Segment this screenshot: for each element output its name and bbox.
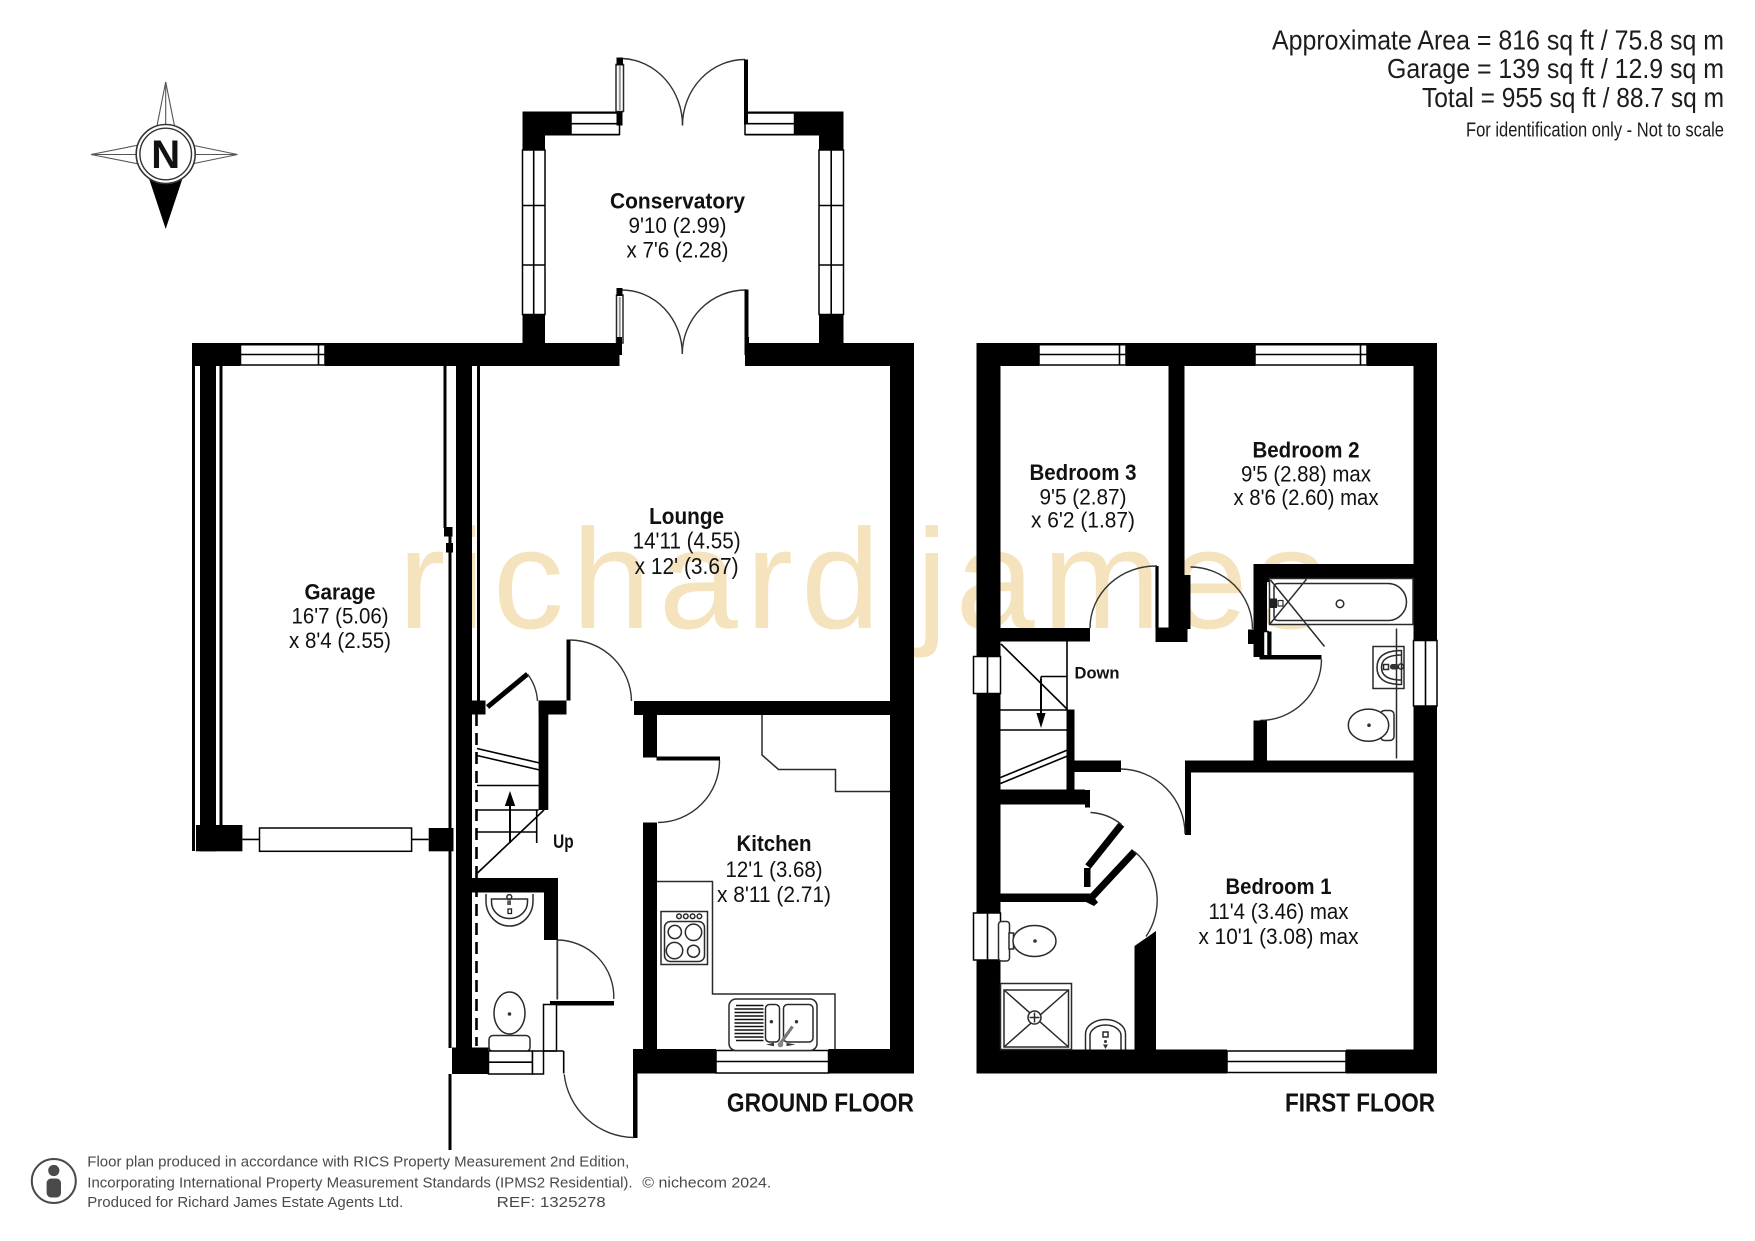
svg-text:Produced for Richard James Est: Produced for Richard James Estate Agents… bbox=[87, 1194, 403, 1211]
svg-text:For identification only - Not: For identification only - Not to scale bbox=[1466, 119, 1724, 141]
svg-text:Kitchen: Kitchen bbox=[737, 831, 812, 856]
svg-text:x 12' (3.67): x 12' (3.67) bbox=[635, 553, 739, 579]
svg-text:Approximate Area = 816 sq ft /: Approximate Area = 816 sq ft / 75.8 sq m bbox=[1272, 25, 1724, 56]
svg-text:Bedroom 3: Bedroom 3 bbox=[1030, 460, 1137, 485]
svg-text:x 8'6 (2.60) max: x 8'6 (2.60) max bbox=[1234, 485, 1379, 510]
svg-text:x 7'6 (2.28): x 7'6 (2.28) bbox=[627, 237, 729, 262]
svg-text:16'7 (5.06): 16'7 (5.06) bbox=[292, 604, 389, 629]
svg-text:richardjames: richardjames bbox=[398, 500, 1335, 659]
svg-text:11'4 (3.46) max: 11'4 (3.46) max bbox=[1209, 899, 1349, 924]
svg-text:x 10'1 (3.08) max: x 10'1 (3.08) max bbox=[1199, 924, 1359, 949]
svg-text:9'5 (2.88) max: 9'5 (2.88) max bbox=[1241, 461, 1371, 486]
svg-text:GROUND FLOOR: GROUND FLOOR bbox=[727, 1087, 914, 1117]
svg-text:9'5 (2.87): 9'5 (2.87) bbox=[1040, 484, 1127, 509]
svg-text:x 8'4 (2.55): x 8'4 (2.55) bbox=[289, 628, 391, 653]
svg-text:12'1 (3.68): 12'1 (3.68) bbox=[726, 857, 823, 882]
svg-text:Bedroom 2: Bedroom 2 bbox=[1253, 438, 1360, 463]
svg-text:Incorporating International Pr: Incorporating International Property Mea… bbox=[87, 1174, 632, 1191]
svg-text:x 6'2 (1.87): x 6'2 (1.87) bbox=[1031, 508, 1135, 533]
svg-text:© nichecom 2024.: © nichecom 2024. bbox=[642, 1174, 771, 1191]
svg-text:REF: 1325278: REF: 1325278 bbox=[497, 1194, 606, 1211]
svg-text:FIRST FLOOR: FIRST FLOOR bbox=[1285, 1087, 1435, 1117]
svg-text:x 8'11 (2.71): x 8'11 (2.71) bbox=[717, 882, 831, 907]
svg-text:Conservatory: Conservatory bbox=[610, 189, 746, 214]
svg-text:Garage: Garage bbox=[305, 580, 376, 605]
svg-text:Floor plan produced in accorda: Floor plan produced in accordance with R… bbox=[87, 1154, 629, 1171]
svg-text:Garage = 139 sq ft / 12.9 sq m: Garage = 139 sq ft / 12.9 sq m bbox=[1387, 53, 1724, 84]
svg-text:Bedroom 1: Bedroom 1 bbox=[1226, 874, 1332, 899]
svg-text:14'11 (4.55): 14'11 (4.55) bbox=[633, 528, 741, 554]
svg-text:Up: Up bbox=[553, 832, 574, 853]
svg-text:Lounge: Lounge bbox=[649, 503, 724, 529]
svg-text:Total = 955 sq ft / 88.7 sq m: Total = 955 sq ft / 88.7 sq m bbox=[1422, 82, 1724, 113]
svg-text:Down: Down bbox=[1075, 665, 1120, 683]
svg-text:N: N bbox=[151, 133, 180, 177]
svg-text:9'10 (2.99): 9'10 (2.99) bbox=[629, 213, 727, 238]
